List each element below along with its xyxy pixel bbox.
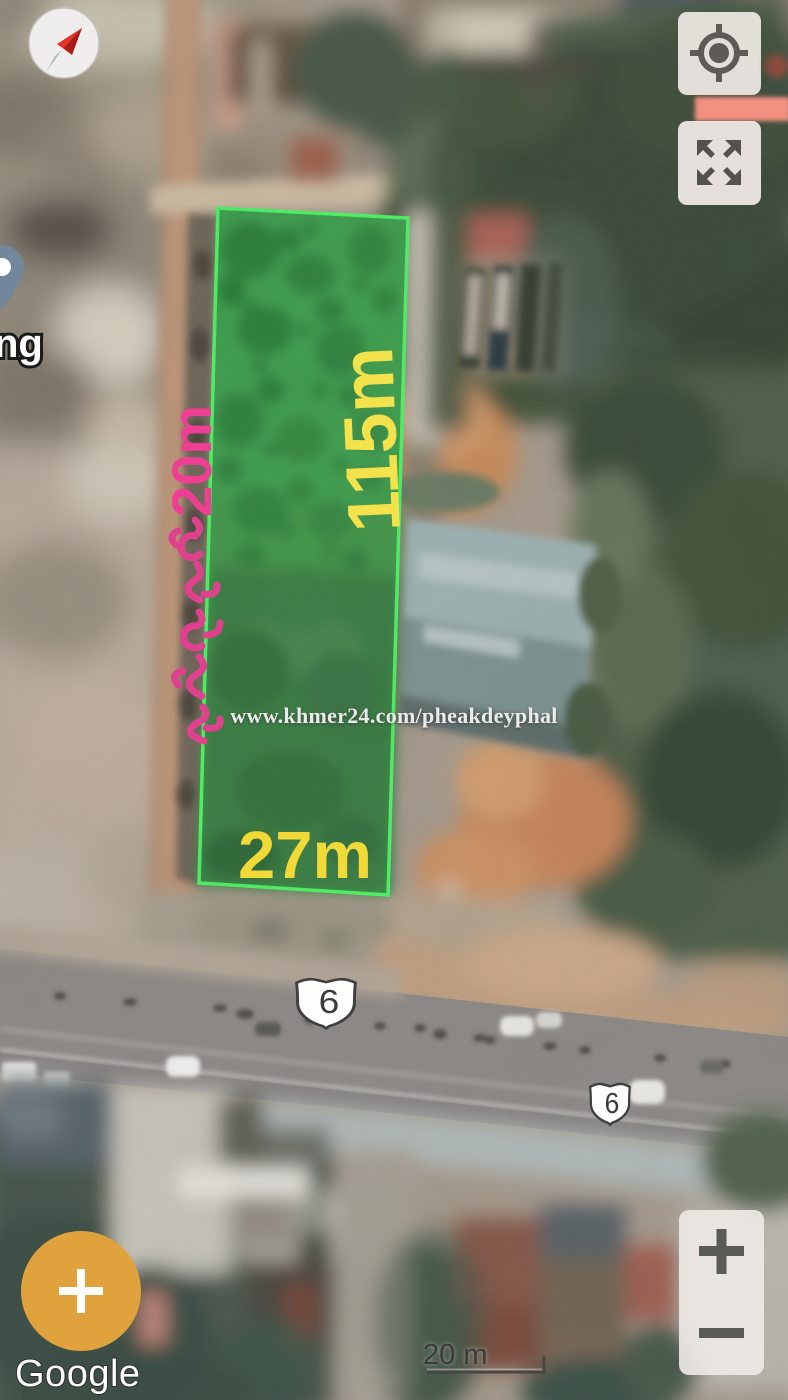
svg-text:27m: 27m <box>238 818 372 893</box>
svg-text:20 m: 20 m <box>423 1339 487 1371</box>
svg-text:Google: Google <box>15 1353 141 1395</box>
svg-text:6: 6 <box>319 984 340 1021</box>
svg-text:115m: 115m <box>325 345 416 534</box>
svg-text:20m: 20m <box>160 405 223 517</box>
svg-text:ng: ng <box>0 322 43 366</box>
svg-text:www.khmer24.com/pheakdeyphal: www.khmer24.com/pheakdeyphal <box>230 703 557 728</box>
svg-text:6: 6 <box>605 1087 620 1119</box>
